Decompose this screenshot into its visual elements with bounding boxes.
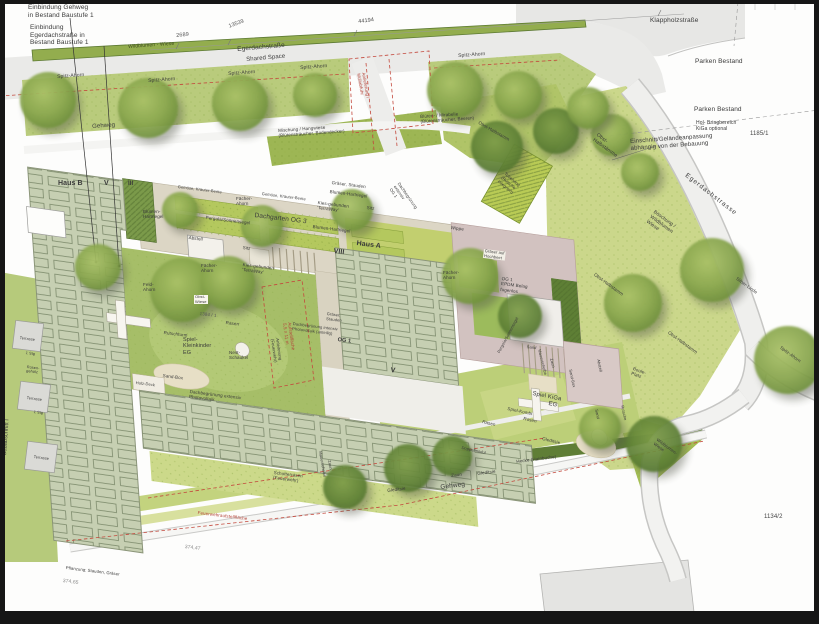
frame-border-top [0,0,819,4]
site-plan: Einbindung Gehweg in Bestand Baustufe 1E… [0,0,819,624]
frame-border-right [814,0,819,624]
frame-border-left [0,0,5,624]
frame-border-bottom [0,611,819,624]
site-plan-ground [0,0,819,624]
